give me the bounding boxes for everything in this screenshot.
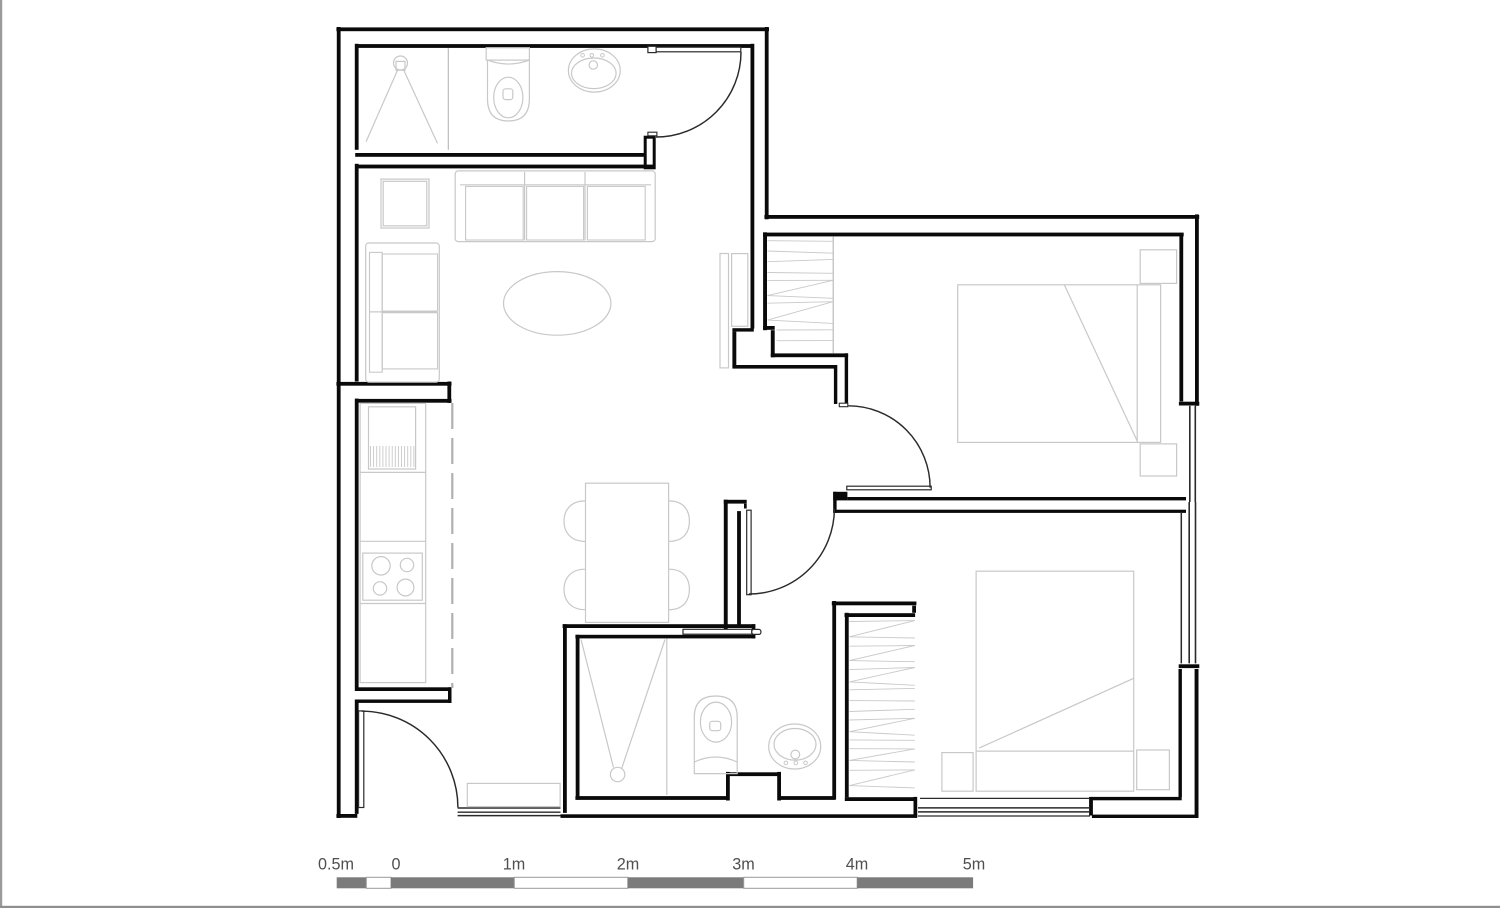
svg-text:2m: 2m <box>617 855 640 873</box>
svg-text:3m: 3m <box>732 855 755 873</box>
svg-text:0.5m: 0.5m <box>318 855 354 873</box>
svg-text:4m: 4m <box>846 855 869 873</box>
svg-text:0: 0 <box>391 855 400 873</box>
svg-text:1m: 1m <box>503 855 526 873</box>
svg-text:5m: 5m <box>963 855 986 873</box>
